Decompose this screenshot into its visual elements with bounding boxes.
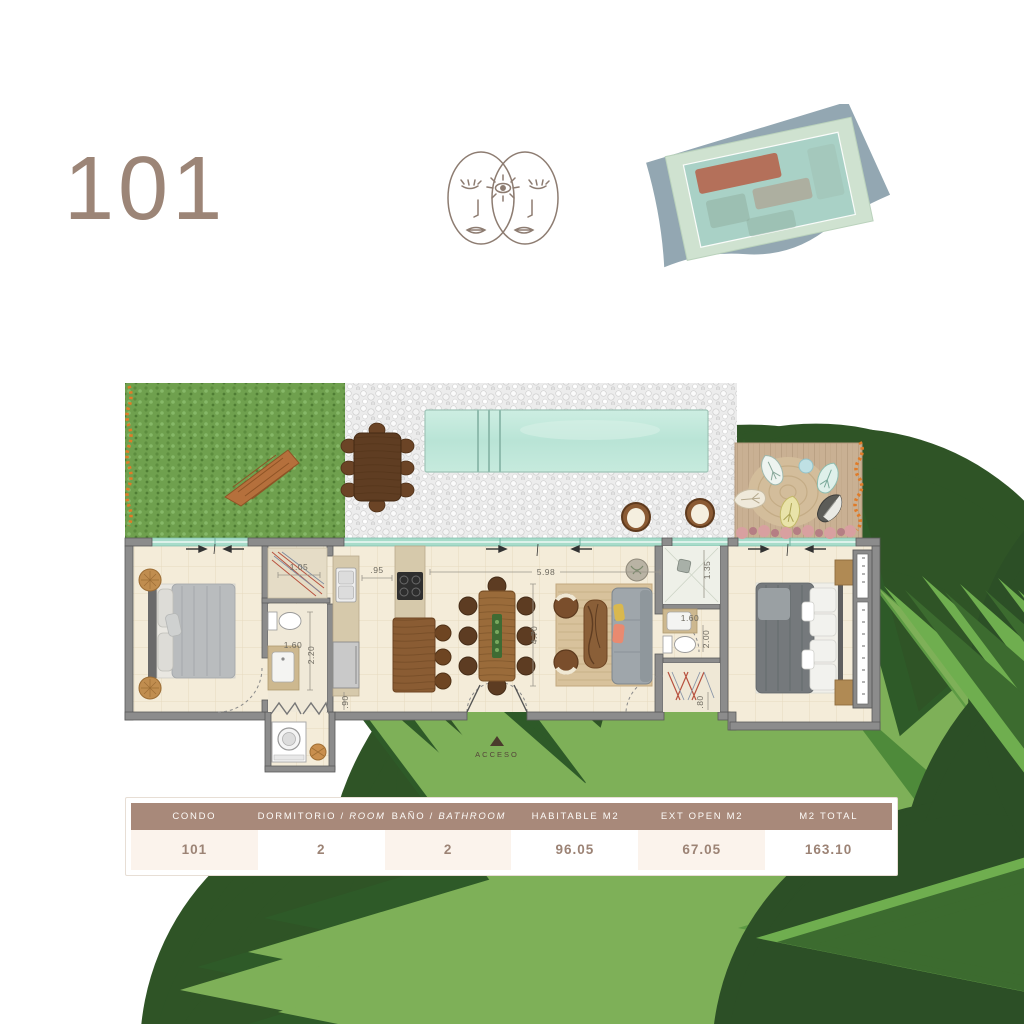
access-label: ACCESO xyxy=(475,750,519,759)
dim-closet1: 1.05 xyxy=(290,562,309,572)
plant-pot xyxy=(626,559,648,581)
header-bano: BAÑO / BATHROOM xyxy=(386,811,513,822)
dim-bath1-width: 1.60 xyxy=(284,640,303,650)
dim-service-pass: .90 xyxy=(340,695,350,708)
spec-table-row: 101 2 2 96.05 67.05 163.10 xyxy=(131,830,892,870)
value-dormitorio: 2 xyxy=(258,830,385,870)
brochure-page: 101 xyxy=(0,0,1024,1024)
value-condo: 101 xyxy=(131,830,258,870)
header-condo: CONDO xyxy=(131,811,258,822)
dim-bath2-depth: 2.00 xyxy=(701,630,711,649)
header-dormitorio: DORMITORIO / ROOM xyxy=(258,811,386,822)
sofa xyxy=(612,588,652,684)
dim-bath1-depth: 2.20 xyxy=(306,646,316,665)
spec-table: CONDO DORMITORIO / ROOM BAÑO / BATHROOM … xyxy=(125,797,898,876)
dim-living-depth: 4.70 xyxy=(529,626,539,645)
coffee-table xyxy=(584,600,607,668)
dim-closet2-pass: .80 xyxy=(695,695,705,708)
closet1 xyxy=(268,548,327,598)
value-m2-total: 163.10 xyxy=(765,830,892,870)
closet2 xyxy=(663,663,720,712)
pool xyxy=(425,410,708,472)
dim-bath2-width: 1.60 xyxy=(681,613,700,623)
header-habitable: HABITABLE M2 xyxy=(512,811,639,822)
dim-shower2-depth: 1.35 xyxy=(702,561,712,580)
header-ext-open: EXT OPEN M2 xyxy=(639,811,766,822)
bath1 xyxy=(268,604,327,712)
value-habitable: 96.05 xyxy=(511,830,638,870)
dim-kitchen-pass: .95 xyxy=(370,565,383,575)
value-ext-open: 67.05 xyxy=(638,830,765,870)
wardrobe xyxy=(853,550,872,708)
kitchen-island xyxy=(393,618,451,692)
dim-living-width: 5.98 xyxy=(537,567,556,577)
value-bano: 2 xyxy=(385,830,512,870)
spec-table-header: CONDO DORMITORIO / ROOM BAÑO / BATHROOM … xyxy=(131,803,892,830)
header-m2-total: M2 TOTAL xyxy=(765,811,892,822)
